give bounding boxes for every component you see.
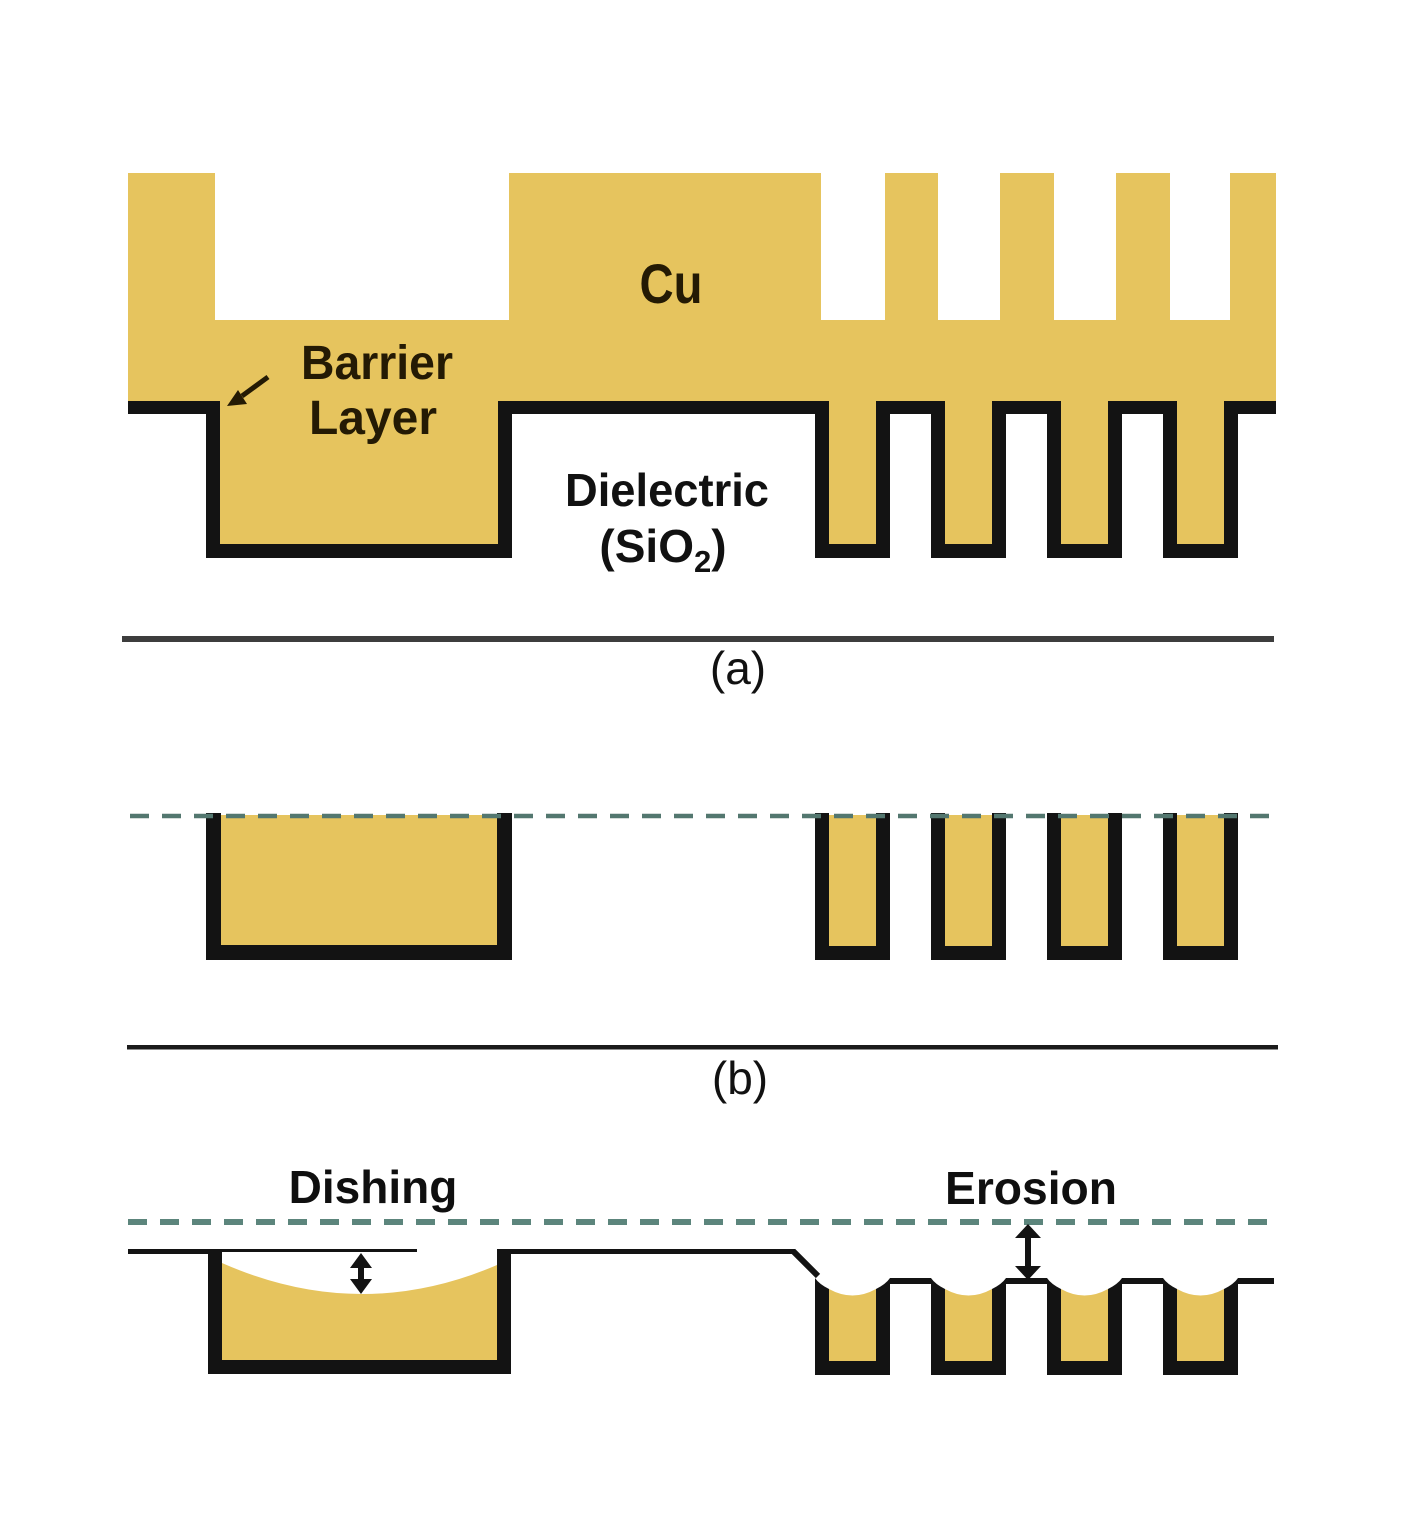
svg-text:(a): (a) [710, 642, 766, 694]
svg-text:Layer: Layer [309, 392, 437, 445]
svg-text:Barrier: Barrier [301, 337, 453, 390]
svg-text:Cu: Cu [640, 252, 703, 315]
svg-text:Erosion: Erosion [945, 1162, 1117, 1214]
svg-text:(b): (b) [712, 1052, 768, 1104]
svg-text:Dielectric: Dielectric [565, 464, 769, 516]
svg-text:Dishing: Dishing [289, 1161, 458, 1213]
